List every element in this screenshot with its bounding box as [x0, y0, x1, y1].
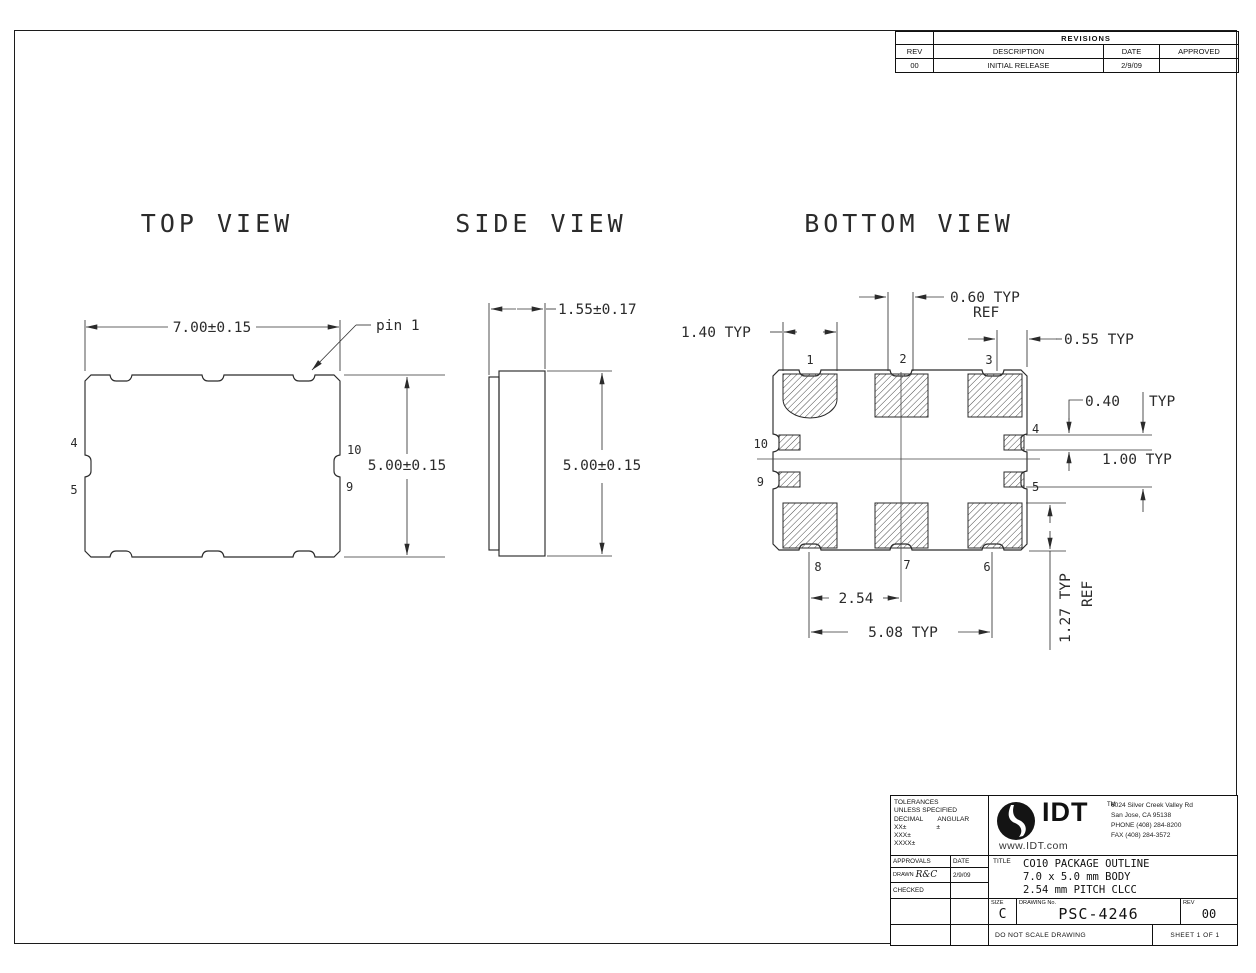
drawing-number-cell: DRAWING No. PSC-4246	[1017, 899, 1181, 924]
dim-gap: 0.60 TYP	[950, 290, 1020, 306]
address-line1: 6024 Silver Creek Valley Rd	[1111, 801, 1235, 811]
tol-xxx: XXX±	[894, 832, 988, 840]
col-header-date: DATE	[1104, 45, 1160, 59]
drawing-title-line3: 2.54 mm PITCH CLCC	[1023, 884, 1237, 897]
tol-angular-label: ANGULAR	[937, 816, 969, 824]
pad-8	[783, 503, 837, 548]
dim-pitch: 2.54	[839, 591, 874, 607]
dim-row-pitch: 1.27 TYP	[1058, 573, 1074, 643]
bottom-view: BOTTOM VIEW 1.40 TYP 0.60 TYP REF	[681, 209, 1175, 650]
company-address: 6024 Silver Creek Valley Rd San Jose, CA…	[1111, 801, 1235, 841]
pad-3	[968, 374, 1022, 417]
size-value: C	[989, 907, 1016, 922]
pin1-callout: pin 1	[376, 318, 420, 334]
side-height-dim: 5.00±0.15	[563, 458, 642, 474]
bottom-pin4-label: 4	[1032, 422, 1039, 436]
top-height-dim: 5.00±0.15	[368, 458, 447, 474]
company-block: IDT TM www.IDT.com 6024 Silver Creek Val…	[989, 796, 1237, 855]
size-label: SIZE	[991, 900, 1003, 906]
bottom-pin7-label: 7	[903, 558, 910, 572]
idt-logo-icon	[996, 801, 1036, 841]
dim-span: 5.08 TYP	[868, 625, 938, 641]
pad-6	[968, 503, 1022, 548]
tolerances-block: TOLERANCES UNLESS SPECIFIED DECIMAL ANGU…	[891, 796, 989, 855]
dim-pad-width: 1.40 TYP	[681, 325, 751, 341]
drawn-date: 2/9/09	[951, 868, 988, 883]
tolerances-line1: TOLERANCES	[894, 799, 988, 807]
bottom-pin10-label: 10	[754, 437, 768, 451]
side-thickness-dim: 1.55±0.17	[558, 302, 637, 318]
date-header: DATE	[951, 856, 988, 868]
drawing-number-value: PSC-4246	[1017, 905, 1180, 923]
top-view: TOP VIEW 7.00±0.15 pin 1 5.00±0.15 4 5 1…	[70, 209, 446, 557]
rev-value: 00	[1181, 907, 1237, 921]
bottom-pin9-label: 9	[757, 475, 764, 489]
sheet-number: SHEET 1 OF 1	[1153, 925, 1237, 945]
col-header-approved: APPROVED	[1160, 45, 1238, 59]
dim-side-pitch: 1.00 TYP	[1102, 452, 1172, 468]
top-pin4-label: 4	[70, 436, 77, 450]
tolerances-line2: UNLESS SPECIFIED	[894, 807, 988, 815]
pad-5	[1004, 472, 1024, 487]
tol-decimal-label: DECIMAL	[894, 816, 923, 824]
title-block: TOLERANCES UNLESS SPECIFIED DECIMAL ANGU…	[890, 795, 1238, 946]
company-website: www.IDT.com	[999, 840, 1068, 852]
approvals-empty-row2	[891, 925, 989, 945]
revision-row-approved	[1160, 59, 1238, 72]
address-line4: FAX (408) 284-3572	[1111, 831, 1235, 841]
side-view-title: SIDE VIEW	[455, 209, 626, 238]
revisions-corner-cell	[896, 32, 934, 45]
revisions-table: REVISIONS REV DESCRIPTION DATE APPROVED …	[895, 31, 1239, 73]
bottom-pin8-label: 8	[814, 560, 821, 574]
checked-date	[951, 883, 988, 898]
title-cell: TITLE CO10 PACKAGE OUTLINE 7.0 x 5.0 mm …	[989, 856, 1237, 898]
approvals-empty-row1	[891, 899, 989, 924]
drawing-title-line1: CO10 PACKAGE OUTLINE	[1023, 858, 1237, 871]
address-line2: San Jose, CA 95138	[1111, 811, 1235, 821]
pad-1	[783, 374, 837, 418]
scale-note: DO NOT SCALE DRAWING	[989, 925, 1153, 945]
dim-corner: 0.55 TYP	[1064, 332, 1134, 348]
col-header-rev: REV	[896, 45, 934, 59]
side-view-lid	[489, 377, 499, 550]
dim-pad-height: 0.40	[1085, 394, 1120, 410]
bottom-view-title: BOTTOM VIEW	[804, 209, 1014, 238]
side-view: SIDE VIEW 1.55±0.17 5.00±0.15	[455, 209, 641, 556]
size-cell: SIZE C	[989, 899, 1017, 924]
dim-gap-ref: REF	[973, 305, 999, 321]
pad-9	[779, 472, 800, 487]
tol-xxxx: XXXX±	[894, 840, 988, 848]
top-view-title: TOP VIEW	[141, 209, 293, 238]
drawn-signature: R&C	[916, 870, 938, 880]
bottom-pin3-label: 3	[985, 353, 992, 367]
approvals-block: APPROVALS DATE DRAWNR&C 2/9/09 CHECKED	[891, 856, 989, 898]
drawing-title-line2: 7.0 x 5.0 mm BODY	[1023, 871, 1237, 884]
bottom-pin6-label: 6	[983, 560, 990, 574]
dim-pad-height-typ: TYP	[1149, 394, 1175, 410]
pad-10	[779, 435, 800, 450]
top-pin9-label: 9	[346, 480, 353, 494]
approvals-header: APPROVALS	[891, 856, 951, 868]
bottom-pin5-label: 5	[1032, 480, 1039, 494]
idt-logo-text: IDT	[1042, 797, 1089, 828]
dim-row-pitch-ref: REF	[1080, 581, 1096, 607]
pad-4	[1004, 435, 1024, 450]
pad-2	[875, 374, 928, 417]
rev-label: REV	[1183, 900, 1195, 906]
side-view-body	[499, 371, 545, 556]
top-view-outline	[85, 375, 340, 557]
drawn-cell: DRAWNR&C	[891, 868, 951, 883]
drawn-label: DRAWN	[893, 872, 914, 878]
top-pin5-label: 5	[70, 483, 77, 497]
revision-row-date: 2/9/09	[1104, 59, 1160, 72]
address-line3: PHONE (408) 284-8200	[1111, 821, 1235, 831]
pad-7	[875, 503, 928, 548]
drawing-sheet: { "revisions": { "title": "REVISIONS", "…	[0, 0, 1256, 973]
rev-cell: REV 00	[1181, 899, 1237, 924]
bottom-pin1-label: 1	[806, 353, 813, 367]
checked-label: CHECKED	[891, 883, 951, 898]
tol-xx: XX±	[894, 824, 906, 832]
col-header-description: DESCRIPTION	[934, 45, 1104, 59]
revisions-title: REVISIONS	[934, 32, 1238, 45]
revision-row-description: INITIAL RELEASE	[934, 59, 1104, 72]
tol-angular-pm: ±	[936, 824, 940, 832]
revision-row-rev: 00	[896, 59, 934, 72]
top-pin10-label: 10	[347, 443, 361, 457]
top-width-dim: 7.00±0.15	[173, 320, 252, 336]
title-label: TITLE	[993, 858, 1011, 865]
bottom-pin2-label: 2	[899, 352, 906, 366]
